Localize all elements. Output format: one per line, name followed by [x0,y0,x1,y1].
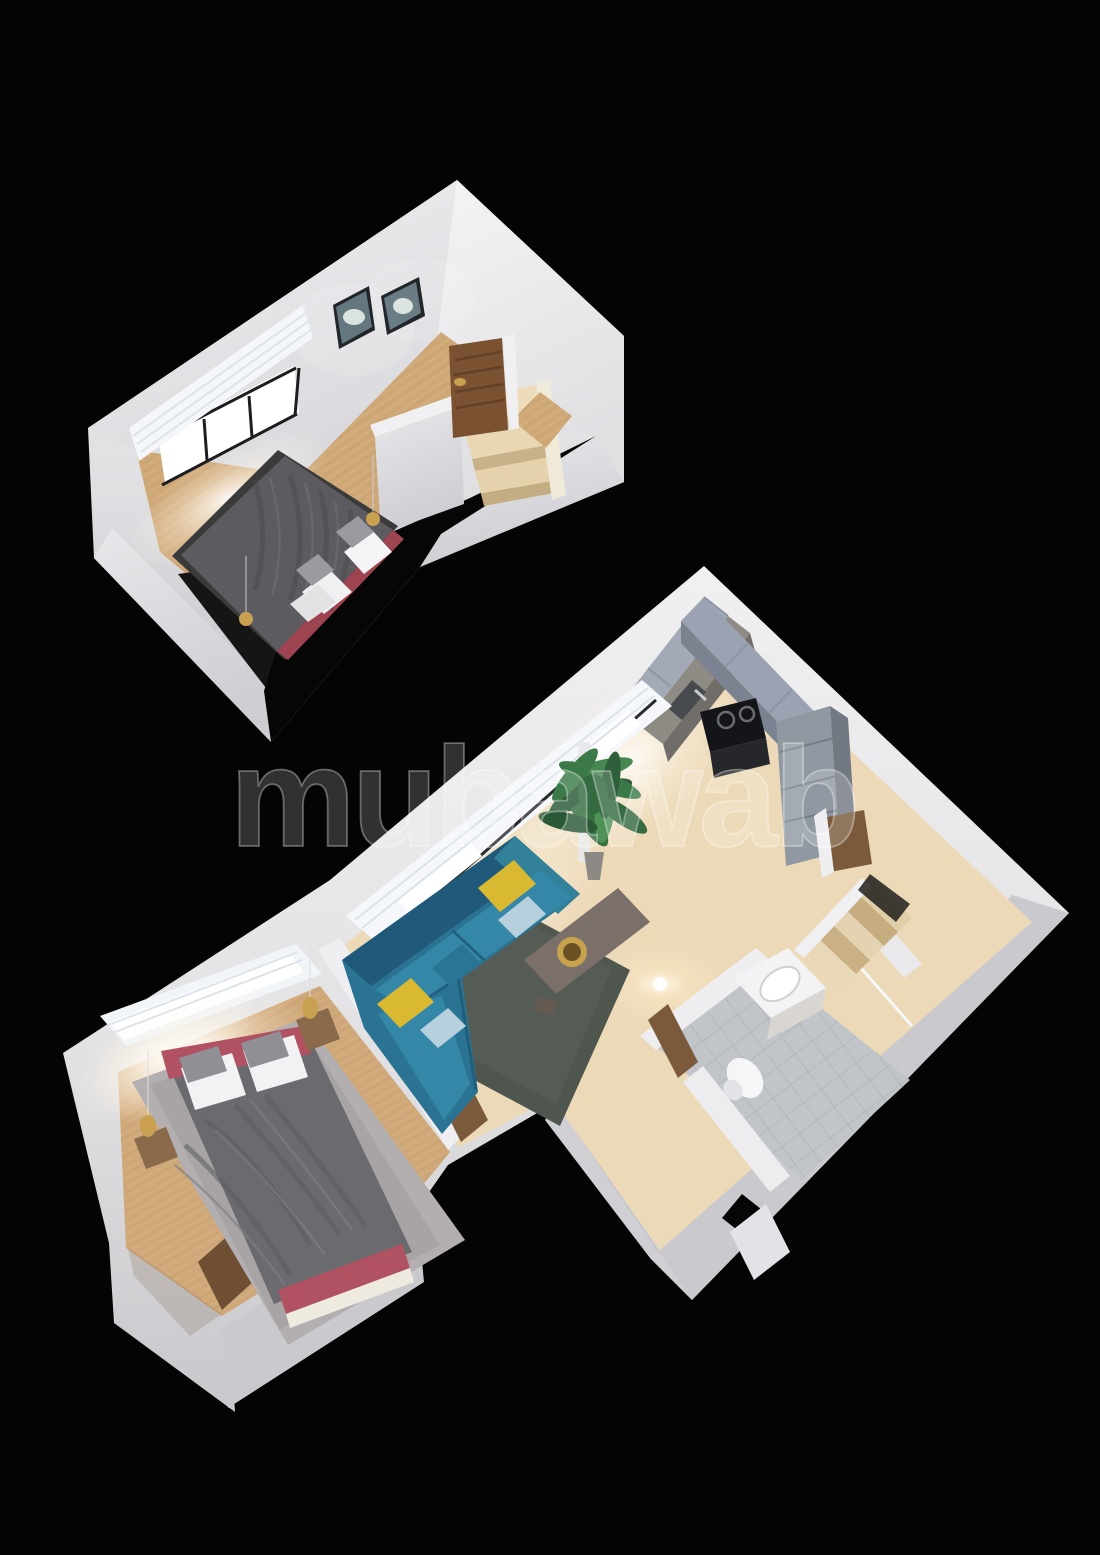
svg-text:mubawab: mubawab [230,718,857,877]
